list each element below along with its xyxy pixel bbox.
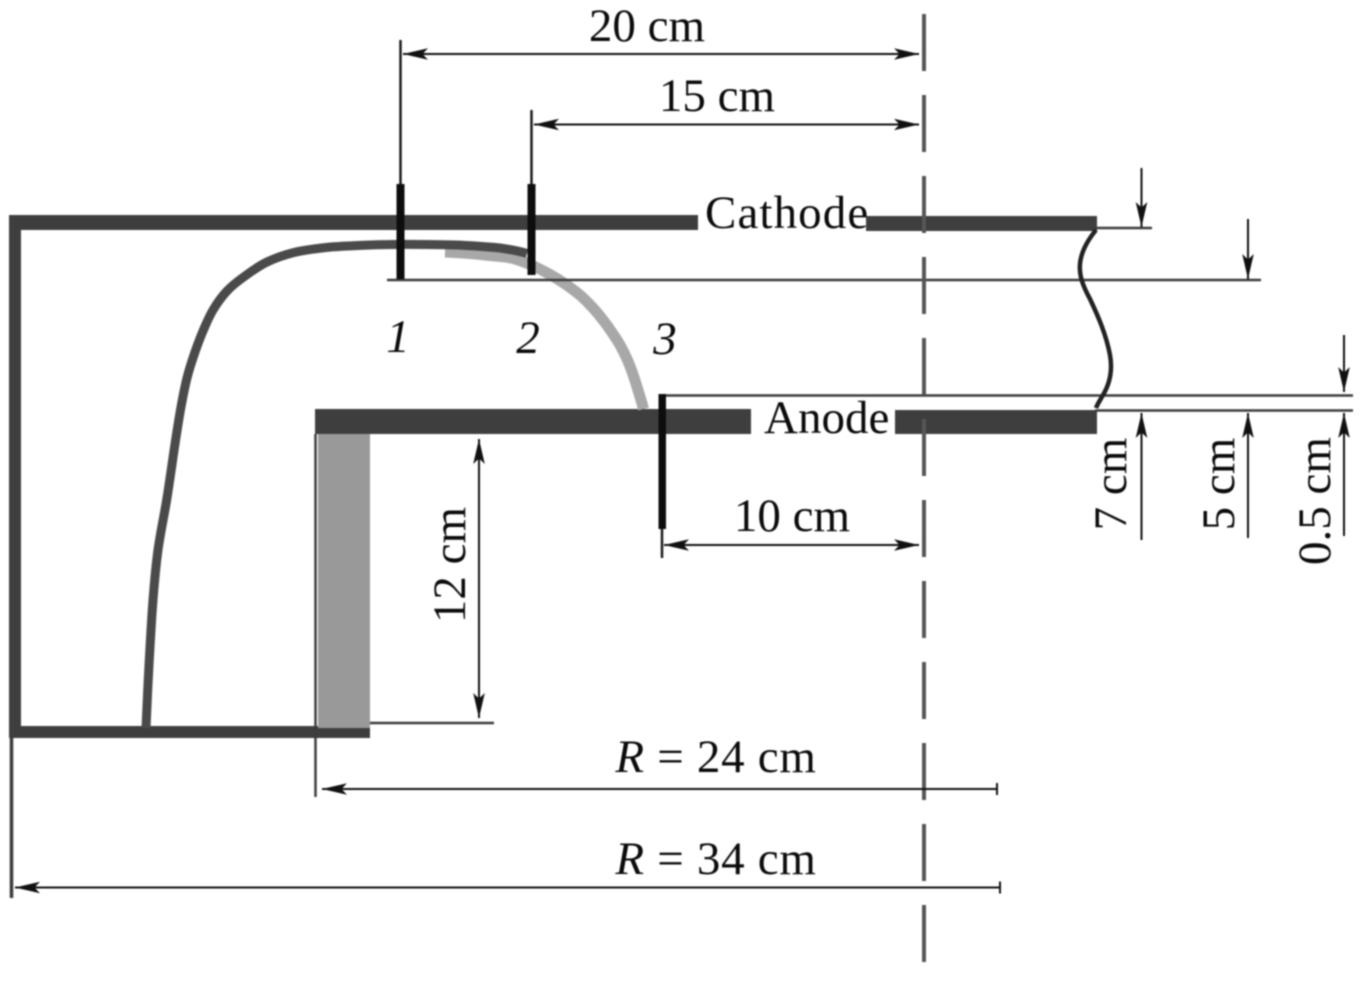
svg-text:R = 34 cm: R = 34 cm	[614, 833, 816, 885]
svg-text:12 cm: 12 cm	[424, 507, 476, 623]
svg-text:10 cm: 10 cm	[734, 490, 850, 542]
svg-text:R = 24 cm: R = 24 cm	[614, 731, 816, 783]
svg-text:3: 3	[652, 313, 677, 365]
svg-text:20 cm: 20 cm	[589, 0, 705, 52]
svg-text:5 cm: 5 cm	[1193, 438, 1245, 531]
svg-text:2: 2	[516, 312, 540, 364]
svg-text:Cathode: Cathode	[705, 187, 869, 239]
svg-text:15 cm: 15 cm	[659, 70, 775, 122]
svg-text:0.5 cm: 0.5 cm	[1289, 437, 1341, 565]
svg-text:Anode: Anode	[764, 392, 889, 444]
svg-text:1: 1	[386, 311, 410, 363]
svg-text:7 cm: 7 cm	[1085, 438, 1137, 531]
